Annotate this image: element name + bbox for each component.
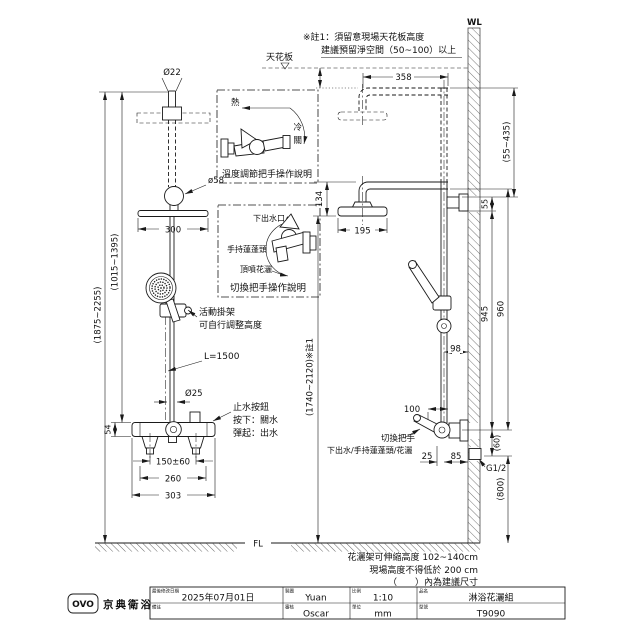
checker-value: Oscar — [303, 610, 329, 620]
dim-arm-reach: 358 — [395, 73, 411, 83]
ceiling-note-line2: 建議預留淨空間（50~100）以上 — [321, 44, 456, 56]
dim-head-width: 300 — [165, 226, 181, 236]
pipe-connector — [163, 107, 182, 120]
logo-text: OVO — [72, 600, 94, 610]
drafter-value: Yuan — [304, 594, 326, 604]
stop-water-button — [190, 412, 200, 423]
label-hand-shower: 手持蓮蓬頭 — [227, 244, 267, 254]
label-bottom-outlet: 下出水口 — [253, 213, 285, 223]
note-min-height: 現場高度不得低於 200 cm — [369, 564, 478, 576]
dim-inlet-span: 150±60 — [156, 458, 190, 468]
label-stop-button-3: 彈起：出水 — [233, 427, 278, 439]
floor-label: FL — [253, 540, 263, 550]
wall-section — [468, 28, 480, 543]
model-value: T9090 — [476, 610, 506, 620]
wall-bracket — [447, 197, 460, 208]
date-value: 2025年07月01日 — [182, 592, 255, 604]
label-bracket-line2: 可自行調整高度 — [199, 319, 262, 331]
wall-line-label: WL — [467, 18, 482, 28]
dim-handle-length: 100 — [404, 405, 420, 415]
drawing-sheet: { "front_view": { "dia_top_pipe": "Ø22",… — [0, 0, 620, 620]
bottom-outlet — [169, 437, 177, 443]
label-thread: G1/2 — [486, 464, 506, 474]
floor-hatch-left — [95, 544, 237, 552]
product-value: 淋浴花灑組 — [468, 592, 513, 604]
label-cold: 冷 — [293, 122, 302, 133]
switch-box-caption: 切換把手操作說明 — [230, 282, 306, 294]
note-suggested-size: （ ）內為建議尺寸 — [388, 576, 478, 588]
label-stop-button-2: 按下：關水 — [233, 414, 278, 426]
valve-body-side — [449, 423, 461, 438]
remark-label: 備註 — [152, 604, 161, 611]
label-hot: 熱 — [231, 97, 240, 108]
temperature-instruction-box: 熱 冷 關 溫度調節把手操作說明 — [217, 90, 318, 183]
overhead-shower-front — [138, 211, 208, 217]
floor-line: FL — [95, 538, 480, 552]
dim-valve-body-height: 54 — [104, 424, 113, 434]
dim-head-diameter: 195 — [354, 227, 370, 237]
dim-60: (60) — [493, 435, 502, 451]
scale-label: 比例 — [352, 588, 361, 595]
date-label: 最後修改日期 — [152, 588, 179, 595]
temp-box-caption: 溫度調節把手操作說明 — [222, 168, 312, 180]
dim-valve-width: 260 — [165, 475, 181, 485]
dim-945: 945 — [481, 306, 491, 322]
model-label: 型號 — [419, 604, 428, 611]
switch-instruction-box: 下出水口 手持蓮蓬頭 頂噴花灑 切換把手操作說明 — [218, 205, 320, 297]
floor-hatch-right — [291, 544, 480, 552]
dim-height-range: (1740~2120)※註1 — [305, 338, 316, 416]
checker-label: 審核 — [285, 604, 294, 611]
label-stop-button-1: 止水按鈕 — [233, 401, 269, 413]
dim-pipe-to-wall: 98 — [450, 345, 461, 355]
unit-label: 單位 — [352, 604, 361, 611]
dim-85: 85 — [451, 452, 462, 462]
label-off: 關 — [293, 136, 302, 146]
bracket-knob-side — [437, 319, 451, 333]
dim-bar-diameter: Ø25 — [185, 388, 203, 399]
dim-overall-width: 303 — [165, 492, 181, 502]
dim-top-pipe-diameter: Ø22 — [163, 67, 181, 78]
dim-head-height: (1015~1395) — [111, 233, 121, 290]
brand-name: 京典衛浴 — [103, 598, 153, 611]
side-view: WL 天花板 ※註1：須留意現場天花板高度 建議預留淨空間（50~100）以上 … — [262, 18, 518, 543]
dim-25: 25 — [422, 452, 433, 462]
label-hose-length: L=1500 — [204, 352, 240, 362]
ceiling-label: 天花板 — [266, 51, 293, 63]
dim-960: 960 — [497, 301, 507, 317]
bracket-knob — [185, 307, 192, 314]
dim-head-drop: 134 — [315, 191, 325, 207]
ceiling-note-line1: ※註1：須留意現場天花板高度 — [303, 31, 424, 43]
temp-knob — [166, 422, 182, 438]
dim-total-height: (1875~2255) — [94, 286, 104, 343]
note-extend-range: 花灑架可伸縮高度 102~140cm — [348, 551, 478, 563]
dim-drop-range: (55~435) — [503, 122, 513, 163]
label-top-shower: 頂噴花灑 — [240, 264, 272, 274]
wall-supply-outlet — [469, 449, 481, 460]
drafter-label: 製圖 — [285, 588, 294, 595]
unit-value: mm — [374, 610, 392, 620]
label-bracket-line1: 活動掛架 — [199, 306, 235, 318]
product-label: 品名 — [419, 588, 428, 595]
technical-drawing: (1875~2255) (1015~1395) Ø22 ø58 300 活動掛架… — [0, 0, 620, 620]
dim-800: (800) — [497, 478, 507, 501]
title-block: OVO 京典衛浴 最後修改日期 2025年07月01日 備註 製圖 Yuan 審… — [68, 587, 565, 620]
bottom-notes: 花灑架可伸縮高度 102~140cm 現場高度不得低於 200 cm （ ）內為… — [348, 551, 478, 588]
elbow-joint — [165, 187, 184, 206]
dim-bracket-offset: 55 — [481, 199, 490, 209]
label-outlet-modes: 下出水/手持蓮蓬頭/花灑 — [327, 445, 412, 455]
scale-value: 1:10 — [373, 594, 393, 604]
